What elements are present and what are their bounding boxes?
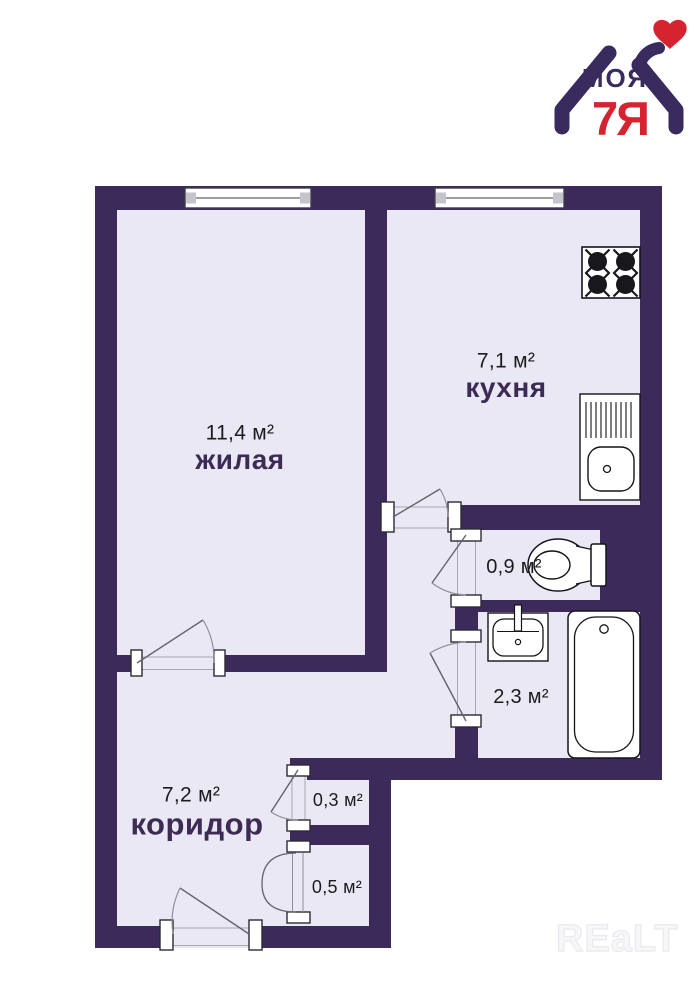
logo-word-bottom: 7Я xyxy=(592,92,648,145)
wc-area-label: 0,9 м² xyxy=(486,557,542,577)
realt-watermark: REaLT xyxy=(556,918,679,961)
floor-plan-drawing xyxy=(0,0,700,985)
bathtub-icon xyxy=(568,611,640,758)
closet-small-area-label: 0,3 м² xyxy=(313,791,363,809)
living-name-label: жилая xyxy=(195,446,284,474)
closet-big-area-label: 0,5 м² xyxy=(312,878,362,896)
kitchen-sink-icon xyxy=(580,394,640,500)
washbasin-icon xyxy=(488,605,548,661)
logo-word-top: МОЯ xyxy=(582,63,648,93)
bathroom-area-label: 2,3 м² xyxy=(493,687,549,707)
window-icon-kitchen xyxy=(435,188,564,208)
floor-plan: 11,4 м² жилая 7,1 м² кухня 0,9 м² 2,3 м²… xyxy=(0,0,700,985)
agency-logo: МОЯ 7Я xyxy=(543,8,695,146)
corridor-area-label: 7,2 м² xyxy=(162,785,220,806)
living-area-label: 11,4 м² xyxy=(206,423,275,444)
stove-icon xyxy=(582,247,640,298)
window-icon-living xyxy=(185,188,311,208)
kitchen-area-label: 7,1 м² xyxy=(477,351,535,372)
corridor-name-label: коридор xyxy=(130,809,263,840)
kitchen-name-label: кухня xyxy=(465,374,546,402)
